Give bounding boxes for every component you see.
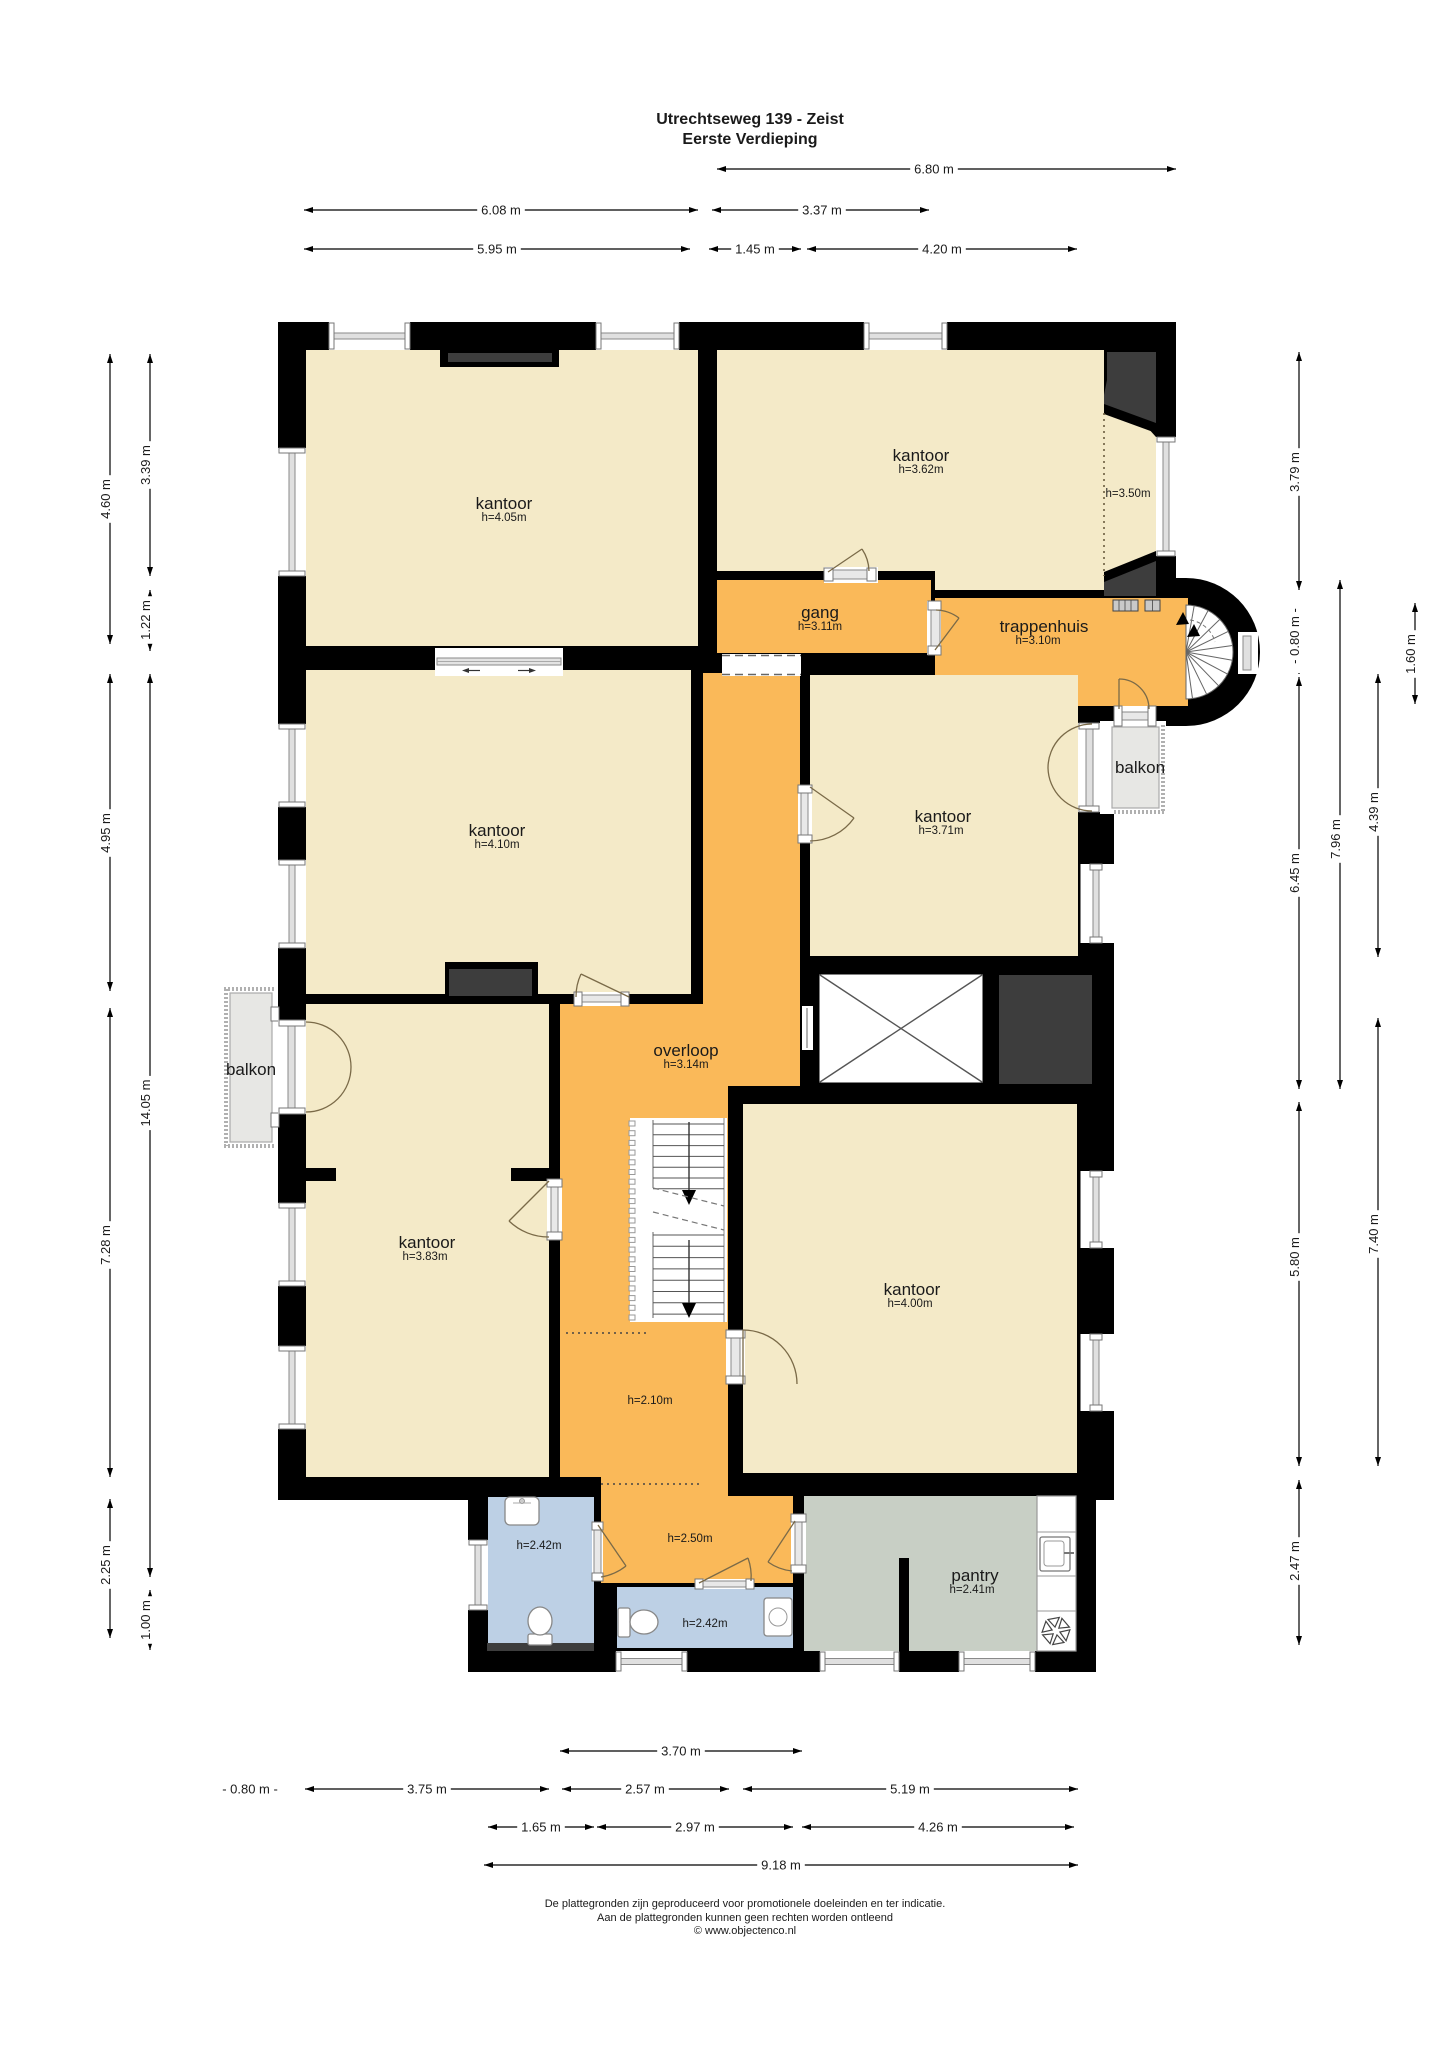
svg-text:Aan de plattegronden kunnen ge: Aan de plattegronden kunnen geen rechten… [597,1912,893,1924]
svg-text:h=2.41m: h=2.41m [949,1584,994,1596]
svg-text:h=3.62m: h=3.62m [898,464,943,476]
svg-text:4.95 m: 4.95 m [98,813,113,853]
svg-text:trappenhuis: trappenhuis [1000,617,1089,636]
svg-text:5.19 m: 5.19 m [890,1782,930,1797]
svg-text:7.96 m: 7.96 m [1328,819,1343,859]
svg-text:3.79 m: 3.79 m [1287,452,1302,492]
svg-text:kantoor: kantoor [469,821,526,840]
svg-text:h=4.10m: h=4.10m [474,839,519,851]
svg-text:kantoor: kantoor [399,1233,456,1252]
svg-text:3.37 m: 3.37 m [802,203,842,218]
svg-text:2.57 m: 2.57 m [625,1782,665,1797]
svg-text:gang: gang [801,603,839,622]
svg-text:1.22 m: 1.22 m [138,600,153,640]
svg-text:4.20 m: 4.20 m [922,242,962,257]
svg-text:14.05 m: 14.05 m [138,1080,153,1127]
svg-text:7.28 m: 7.28 m [98,1225,113,1265]
svg-text:1.60 m: 1.60 m [1403,634,1418,674]
svg-text:6.08 m: 6.08 m [481,203,521,218]
svg-text:5.80 m: 5.80 m [1287,1237,1302,1277]
svg-text:h=3.14m: h=3.14m [663,1059,708,1071]
svg-text:9.18 m: 9.18 m [761,1858,801,1873]
svg-text:Eerste Verdieping: Eerste Verdieping [682,131,817,148]
svg-text:De plattegronden zijn geproduc: De plattegronden zijn geproduceerd voor … [545,1898,946,1910]
svg-text:1.00 m: 1.00 m [138,1600,153,1640]
svg-text:- 0.80 m -: - 0.80 m - [1287,608,1302,664]
svg-text:kantoor: kantoor [893,446,950,465]
svg-text:pantry: pantry [951,1566,999,1585]
svg-text:1.45 m: 1.45 m [735,242,775,257]
svg-text:4.39 m: 4.39 m [1366,792,1381,832]
svg-text:4.26 m: 4.26 m [918,1820,958,1835]
svg-text:h=3.83m: h=3.83m [402,1251,447,1263]
svg-text:- 0.80 m -: - 0.80 m - [222,1782,278,1797]
svg-text:1.65 m: 1.65 m [521,1820,561,1835]
svg-text:kantoor: kantoor [915,807,972,826]
svg-text:2.47 m: 2.47 m [1287,1541,1302,1581]
svg-text:overloop: overloop [653,1041,718,1060]
svg-text:3.39 m: 3.39 m [138,445,153,485]
svg-text:kantoor: kantoor [476,494,533,513]
svg-text:2.25 m: 2.25 m [98,1545,113,1585]
svg-text:kantoor: kantoor [884,1280,941,1299]
svg-text:3.75 m: 3.75 m [407,1782,447,1797]
svg-text:6.80 m: 6.80 m [914,162,954,177]
svg-text:7.40 m: 7.40 m [1366,1214,1381,1254]
svg-text:h=2.42m: h=2.42m [516,1540,561,1552]
svg-text:h=3.11m: h=3.11m [798,621,842,633]
svg-text:h=2.42m: h=2.42m [682,1618,727,1630]
svg-text:3.70 m: 3.70 m [661,1744,701,1759]
svg-text:6.45 m: 6.45 m [1287,853,1302,893]
svg-text:© www.objectenco.nl: © www.objectenco.nl [694,1925,796,1937]
svg-text:h=3.10m: h=3.10m [1015,635,1060,647]
svg-text:h=4.05m: h=4.05m [481,512,526,524]
svg-text:h=3.71m: h=3.71m [918,825,963,837]
svg-text:balkon: balkon [1115,758,1165,777]
svg-text:2.97 m: 2.97 m [675,1820,715,1835]
svg-text:balkon: balkon [226,1060,276,1079]
svg-text:h=2.50m: h=2.50m [667,1533,712,1545]
svg-text:h=2.10m: h=2.10m [627,1395,672,1407]
svg-text:4.60 m: 4.60 m [98,479,113,519]
svg-text:Utrechtseweg 139 - Zeist: Utrechtseweg 139 - Zeist [656,111,844,128]
svg-text:h=4.00m: h=4.00m [887,1298,932,1310]
svg-text:h=3.50m: h=3.50m [1105,488,1150,500]
svg-text:5.95 m: 5.95 m [477,242,517,257]
